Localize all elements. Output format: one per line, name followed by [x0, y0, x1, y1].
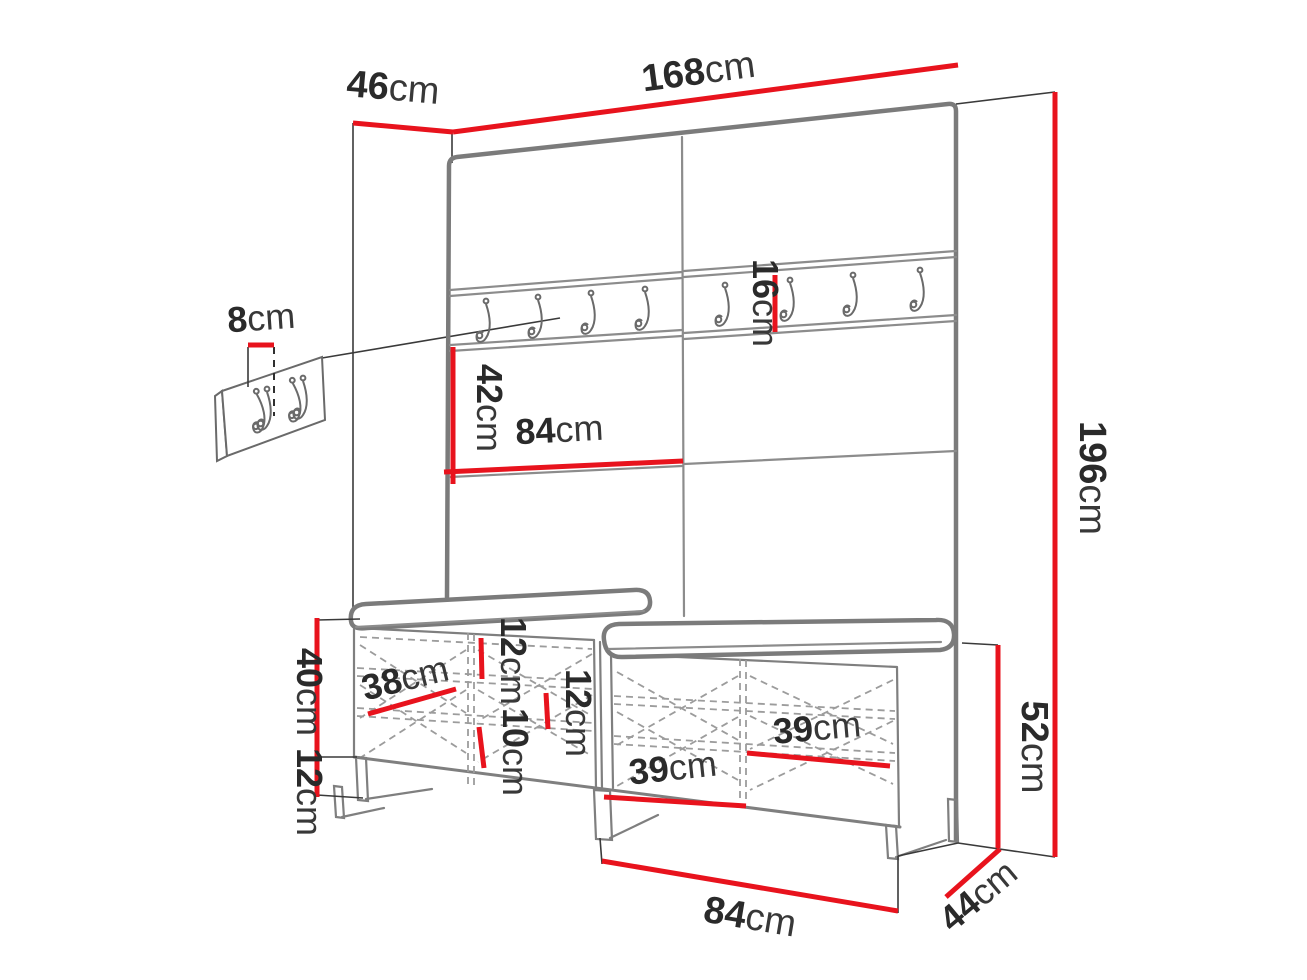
dim-bench-total-height: 52cm	[962, 643, 1055, 848]
dim-shelf-gap-top: 12cm	[481, 617, 534, 705]
coat-hook-icon	[477, 299, 490, 342]
coat-hook-icon	[529, 295, 542, 338]
svg-text:84cm: 84cm	[701, 889, 800, 946]
diagram-canvas: 168cm 46cm 196cm 8cm 16cm 42cm 84cm	[0, 0, 1307, 980]
dim-depth-top: 46cm	[345, 63, 453, 132]
svg-text:40cm: 40cm	[289, 648, 330, 736]
dim-bench-depth: 44cm	[931, 849, 1025, 939]
dim-leg-height-label: 12cm	[289, 748, 330, 836]
svg-text:46cm: 46cm	[345, 63, 441, 113]
shoe-bench	[334, 590, 958, 859]
plaque-face	[222, 357, 325, 456]
rail-bottom-seam-right	[684, 315, 956, 339]
panel-mid-seam	[450, 451, 956, 477]
svg-text:196cm: 196cm	[1071, 421, 1113, 535]
hook-plaque-detail	[215, 357, 325, 461]
svg-text:8cm: 8cm	[226, 295, 297, 341]
dimension-annotations: 168cm 46cm 196cm 8cm 16cm 42cm 84cm	[226, 44, 1113, 946]
dim-compartment-width-left: 39cm	[604, 743, 746, 806]
dim-shelf-gap-mid: 12cm	[546, 669, 599, 757]
dim-bench-body-height: 40cm 12cm	[289, 618, 363, 836]
svg-text:44cm: 44cm	[931, 851, 1025, 939]
furniture-dimension-diagram: 168cm 46cm 196cm 8cm 16cm 42cm 84cm	[0, 0, 1307, 980]
svg-text:52cm: 52cm	[1013, 701, 1055, 794]
coat-hook-icon	[636, 287, 649, 330]
svg-text:84cm: 84cm	[514, 407, 604, 453]
svg-text:39cm: 39cm	[771, 703, 862, 752]
svg-text:10cm: 10cm	[495, 708, 536, 796]
coat-hook-icon	[716, 283, 729, 326]
dim-compartment-depth: 38cm	[357, 647, 456, 714]
dim-bench-width: 84cm	[600, 838, 898, 946]
dim-panel-section-height: 42cm	[453, 347, 510, 484]
dim-rail-height: 16cm	[745, 259, 786, 347]
svg-text:39cm: 39cm	[627, 743, 719, 793]
right-seat-cushion	[604, 620, 954, 657]
svg-text:42cm: 42cm	[469, 364, 510, 452]
svg-text:12cm: 12cm	[493, 617, 534, 705]
coat-hook-icon	[911, 268, 924, 311]
bench-bottom-edge	[354, 757, 900, 827]
plaque-leader-line	[322, 318, 560, 358]
rail-top-seam-right	[684, 251, 956, 277]
dim-width-total: 168cm	[453, 44, 958, 132]
rail-top-seam-left	[450, 272, 682, 296]
coat-hook-icon	[582, 291, 595, 334]
svg-text:38cm: 38cm	[357, 647, 452, 708]
panel-center-divider	[682, 137, 684, 616]
svg-text:16cm: 16cm	[745, 259, 786, 347]
svg-text:12cm: 12cm	[558, 669, 599, 757]
bench-left-top	[356, 628, 594, 640]
coat-hook-icon	[844, 273, 857, 316]
dim-shelf-gap-bottom: 10cm	[479, 708, 536, 796]
